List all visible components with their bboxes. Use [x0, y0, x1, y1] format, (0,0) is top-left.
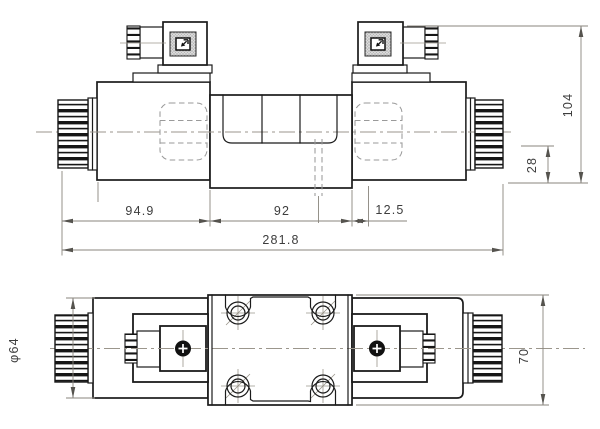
engineering-drawing: 94.9 92 12.5 281.8 104 28 [0, 0, 600, 429]
plan-right-gland [400, 331, 423, 367]
dim-overall-height: 104 [561, 93, 575, 117]
dim-solenoid-side-length: 94.9 [125, 204, 154, 218]
left-gland-ribs [127, 26, 140, 59]
connector-screw-right [369, 341, 385, 357]
plan-left-knurled-nut [55, 315, 88, 382]
left-cable-gland [140, 27, 163, 58]
plan-left-washer [88, 313, 93, 383]
valve-body [210, 95, 352, 188]
left-connector-flange [133, 73, 210, 82]
right-connector-neck [353, 65, 407, 73]
valve-drawing-canvas: 94.9 92 12.5 281.8 104 28 [0, 0, 600, 429]
right-cable-gland [403, 27, 425, 58]
left-knurled-nut [58, 100, 88, 168]
right-connector-flange [352, 73, 430, 82]
right-connector-emblem [365, 32, 391, 56]
dim-body-width: 70 [517, 348, 531, 364]
plan-view: φ64 70 [7, 295, 585, 405]
dim-overall-length: 281.8 [262, 233, 299, 247]
dim-body-length: 92 [274, 204, 290, 218]
front-view: 94.9 92 12.5 281.8 104 28 [36, 22, 588, 256]
dim-coil-diameter: φ64 [7, 337, 21, 363]
plan-right-knurled-nut [473, 315, 502, 382]
right-gland-ribs [425, 26, 438, 59]
left-connector-emblem [170, 32, 196, 56]
dim-port-offset: 12.5 [375, 203, 404, 217]
left-connector-neck [158, 65, 212, 73]
dim-base-to-bottom: 28 [525, 157, 539, 173]
right-knurled-nut [475, 100, 503, 168]
plan-left-gland [137, 331, 160, 367]
connector-screw-left [175, 341, 191, 357]
